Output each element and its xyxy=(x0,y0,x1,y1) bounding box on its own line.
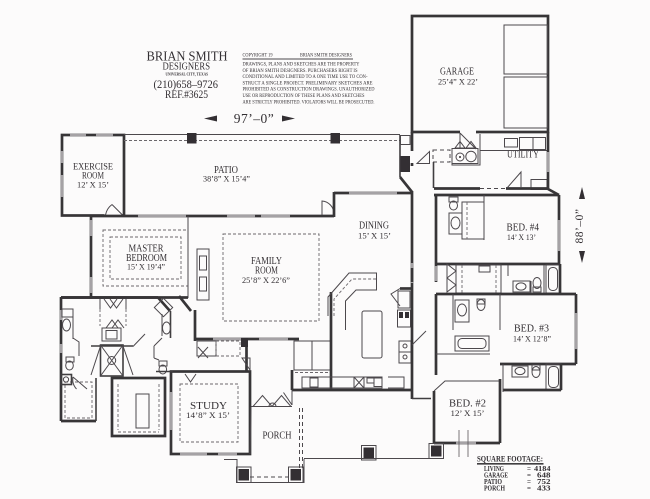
svg-text:STRUCT A SINGLE PROJECT. PREL: STRUCT A SINGLE PROJECT. PRELIMINARY SKE… xyxy=(243,81,373,86)
svg-text:12’ X 15’: 12’ X 15’ xyxy=(77,181,109,190)
svg-text:433: 433 xyxy=(537,484,551,492)
svg-text:PORCH: PORCH xyxy=(263,431,292,442)
svg-text:ROOM: ROOM xyxy=(82,171,104,181)
svg-text:USE OR REPRODUCTION OF THESE P: USE OR REPRODUCTION OF THESE PLANS AND S… xyxy=(243,94,365,99)
svg-text:SQUARE FOOTAGE:: SQUARE FOOTAGE: xyxy=(477,454,543,464)
svg-text:12’ X 15’: 12’ X 15’ xyxy=(451,408,485,418)
svg-text:=: = xyxy=(527,484,531,492)
svg-text:UTILITY: UTILITY xyxy=(507,150,539,161)
svg-text:REF.#3625: REF.#3625 xyxy=(165,89,208,101)
svg-text:OF BRIAN SMITH DESIGNERS. PUR: OF BRIAN SMITH DESIGNERS. PURCHASERS RIG… xyxy=(243,69,358,74)
svg-text:BRIAN SMITH DESIGNERS: BRIAN SMITH DESIGNERS xyxy=(300,54,352,59)
svg-text:DRAWINGS, PLANS AND SKETCHES A: DRAWINGS, PLANS AND SKETCHES ARE THE PRO… xyxy=(243,63,361,68)
svg-text:25’4” X 22’: 25’4” X 22’ xyxy=(438,77,478,87)
svg-text:15’ X 19’4”: 15’ X 19’4” xyxy=(127,262,165,272)
svg-text:38’8” X 15’4”: 38’8” X 15’4” xyxy=(203,174,250,184)
svg-text:PORCH: PORCH xyxy=(484,484,505,492)
svg-text:25’8” X 22’6”: 25’8” X 22’6” xyxy=(242,275,290,285)
svg-text:ARE STRICTLY PROHIBITED. VIOL: ARE STRICTLY PROHIBITED. VIOLATORS WILL … xyxy=(243,100,375,105)
svg-text:14’ X 12’8”: 14’ X 12’8” xyxy=(513,334,551,344)
svg-text:14’ X 13’: 14’ X 13’ xyxy=(507,232,536,242)
svg-text:PROHIBITED AS CONSTRUCTION DRA: PROHIBITED AS CONSTRUCTION DRAWINGS. UNA… xyxy=(243,88,376,93)
svg-text:88’–0”: 88’–0” xyxy=(574,209,586,244)
svg-text:COPYRIGHT 19: COPYRIGHT 19 xyxy=(243,54,274,59)
svg-text:UNIVERSAL CITY, TEXAS: UNIVERSAL CITY, TEXAS xyxy=(166,72,209,77)
svg-text:14’8” X 15’: 14’8” X 15’ xyxy=(186,410,230,420)
svg-text:CONDITIONAL AND LIMITED TO A O: CONDITIONAL AND LIMITED TO A ONE TIME US… xyxy=(243,75,368,80)
svg-text:97’–0”: 97’–0” xyxy=(234,111,275,126)
svg-text:15’ X 15’: 15’ X 15’ xyxy=(358,231,391,241)
